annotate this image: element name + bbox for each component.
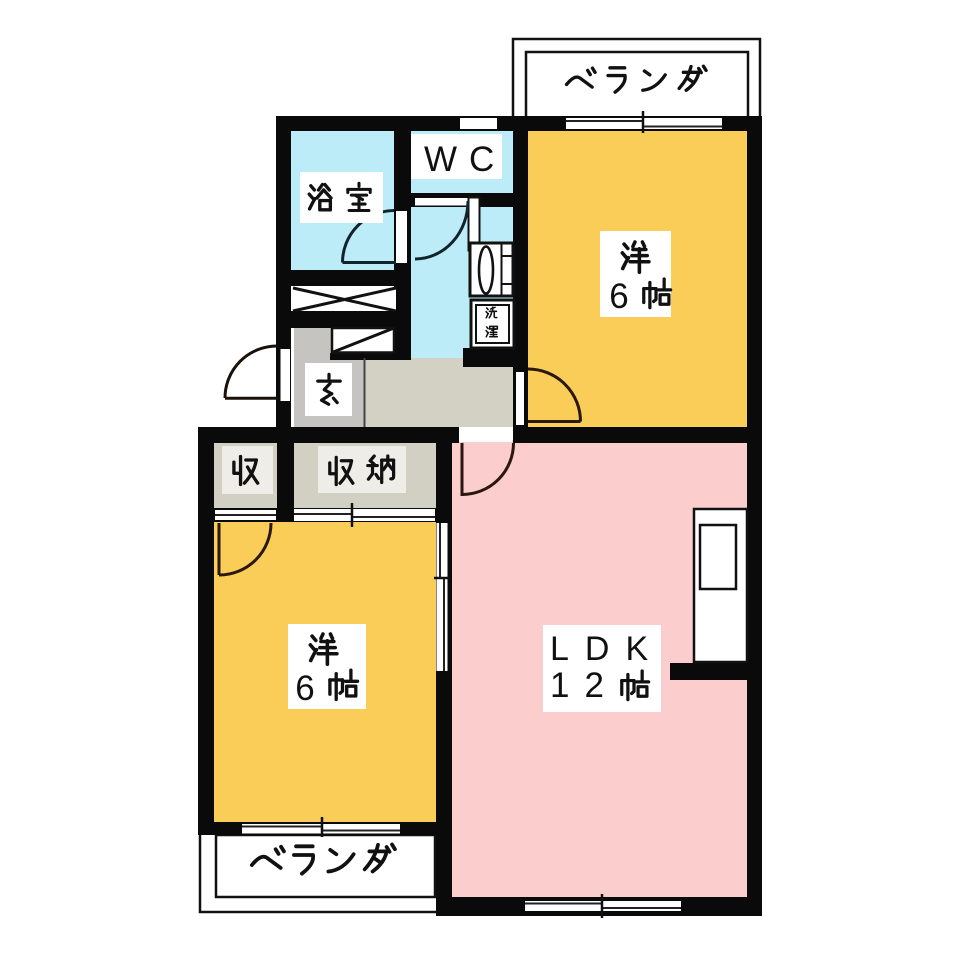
svg-text:WC: WC [424, 140, 506, 179]
svg-text:6: 6 [295, 669, 314, 708]
svg-text:12: 12 [550, 666, 619, 705]
svg-text:6: 6 [609, 277, 628, 316]
svg-text:LDK: LDK [550, 630, 664, 668]
